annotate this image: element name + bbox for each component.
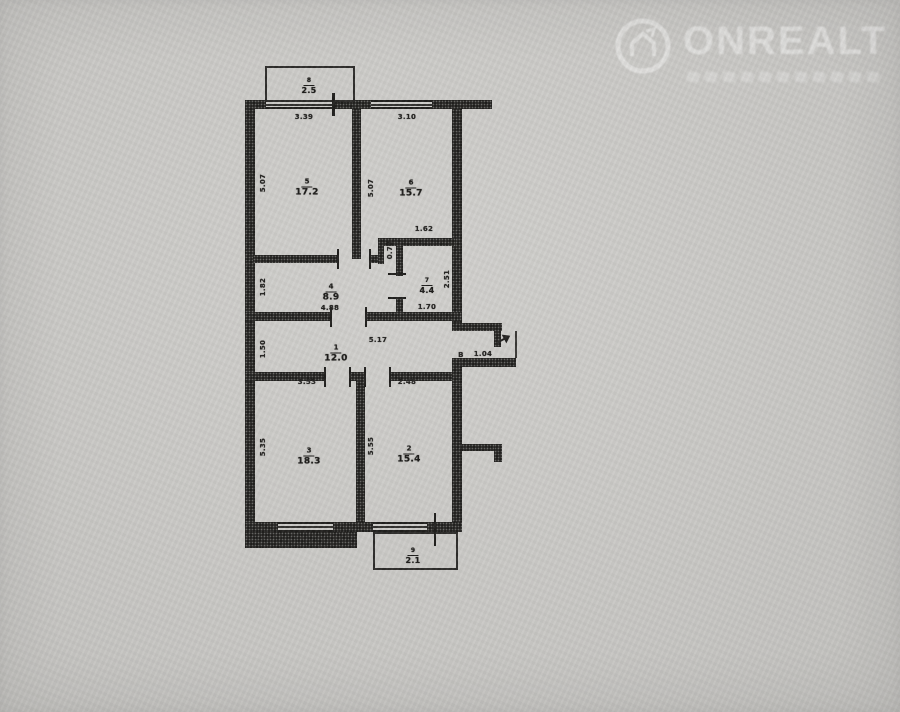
dimension-label: 5.07 [259, 174, 267, 192]
dimension-label: 1.82 [259, 278, 267, 296]
room-7-label: 74.4 [419, 267, 434, 295]
scanned-photo-background: ONREALT [0, 0, 900, 712]
room-1-label: 112.0 [324, 335, 347, 364]
balcony-door-line [434, 513, 436, 546]
window [278, 522, 333, 532]
door-tick [389, 367, 391, 387]
dimension-label: 5.55 [367, 437, 375, 455]
dimension-label: 3.53 [298, 378, 316, 386]
wall [333, 522, 373, 532]
wall [432, 100, 492, 109]
room-9-label: 92.1 [405, 537, 420, 565]
room-6-label: 615.7 [399, 170, 422, 199]
dimension-label: 5.17 [369, 336, 387, 344]
landing-edge-line [515, 331, 517, 358]
dimension-label: 0.79 [386, 241, 394, 259]
wall [245, 100, 255, 548]
dimension-label: 1.70 [418, 303, 436, 311]
dimension-label: 3.39 [295, 113, 313, 121]
wall [245, 532, 357, 548]
wall [452, 381, 462, 532]
floor-plan: 82.5517.2615.748.974.4112.0318.3215.492.… [0, 0, 900, 712]
wall [352, 109, 361, 259]
window-tick [332, 93, 335, 116]
dimension-label: 1.04 [474, 350, 492, 358]
room-2-label: 215.4 [397, 436, 420, 465]
door-tick [349, 367, 351, 387]
wall [366, 312, 462, 321]
wall [356, 381, 365, 522]
window [371, 100, 432, 109]
door-tick [324, 367, 326, 387]
dimension-label: 5.35 [259, 438, 267, 456]
dimension-label: 3.10 [398, 113, 416, 121]
room-4-label: 48.9 [323, 274, 340, 303]
dimension-label: 2.48 [398, 378, 416, 386]
room-8-label: 82.5 [301, 67, 316, 95]
door-tick [369, 249, 371, 269]
dimension-label: 2.51 [443, 270, 451, 288]
door-tick [364, 367, 366, 387]
wall [452, 109, 462, 330]
door-tick [337, 249, 339, 269]
wall [396, 246, 403, 276]
dimension-label: 1.50 [259, 340, 267, 358]
wall [245, 312, 330, 321]
room-3-label: 318.3 [297, 438, 320, 467]
dimension-label: 4.88 [321, 304, 339, 312]
door-tick [365, 307, 367, 327]
room-5-label: 517.2 [295, 169, 318, 198]
window [373, 522, 427, 532]
wall [452, 358, 462, 384]
wall [245, 100, 266, 109]
dimension-label: 5.07 [367, 179, 375, 197]
wall [253, 255, 338, 263]
door-tick [388, 297, 406, 299]
door-tick [388, 273, 406, 275]
wall [427, 522, 462, 532]
wall [378, 238, 384, 264]
wall [245, 522, 278, 532]
duct-wall [494, 444, 502, 462]
dimension-label: 1.62 [415, 225, 433, 233]
dimension-label: В [458, 351, 464, 359]
